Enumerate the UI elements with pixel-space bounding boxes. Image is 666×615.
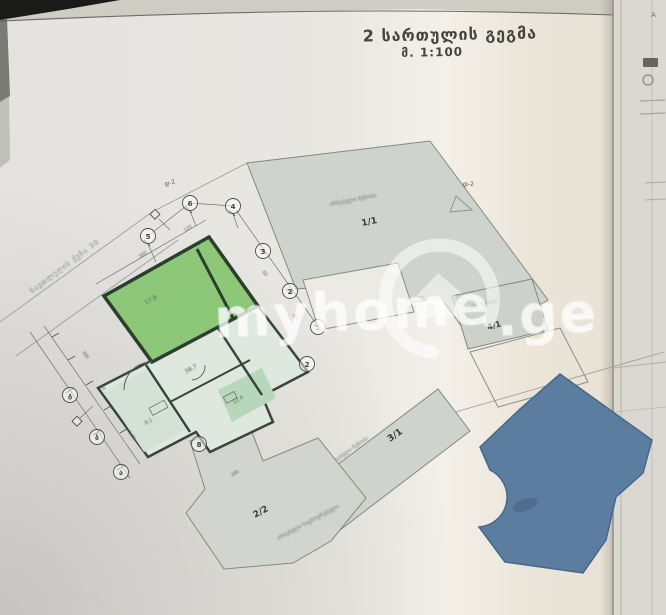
plan-drawing: A 2 სართულის გეგმა მ. 1:100 ნავთლუღის ქუ…	[0, 0, 666, 615]
floorplan-photo: A 2 სართულის გეგმა მ. 1:100 ნავთლუღის ქუ…	[0, 0, 666, 615]
title-line1: 2 სართულის გეგმა	[363, 23, 537, 45]
grid-bubble: 2	[305, 361, 310, 369]
grid-bubble: ბ	[95, 434, 99, 442]
axis-marker-right-label: დ-2	[463, 181, 474, 188]
corner-mark: A	[651, 11, 656, 19]
watermark-tld: .ge	[495, 281, 600, 349]
strip-icon-dark	[643, 58, 658, 67]
grid-bubble: 6	[188, 200, 193, 208]
grid-bubble: 3	[261, 248, 266, 256]
grid-bubble: 5	[146, 233, 151, 241]
title-scale: მ. 1:100	[401, 45, 463, 60]
grid-bubble: 8	[197, 441, 202, 449]
grid-bubble: ა	[119, 469, 123, 477]
grid-bubble: გ	[68, 392, 73, 400]
grid-bubble: 4	[231, 203, 236, 211]
